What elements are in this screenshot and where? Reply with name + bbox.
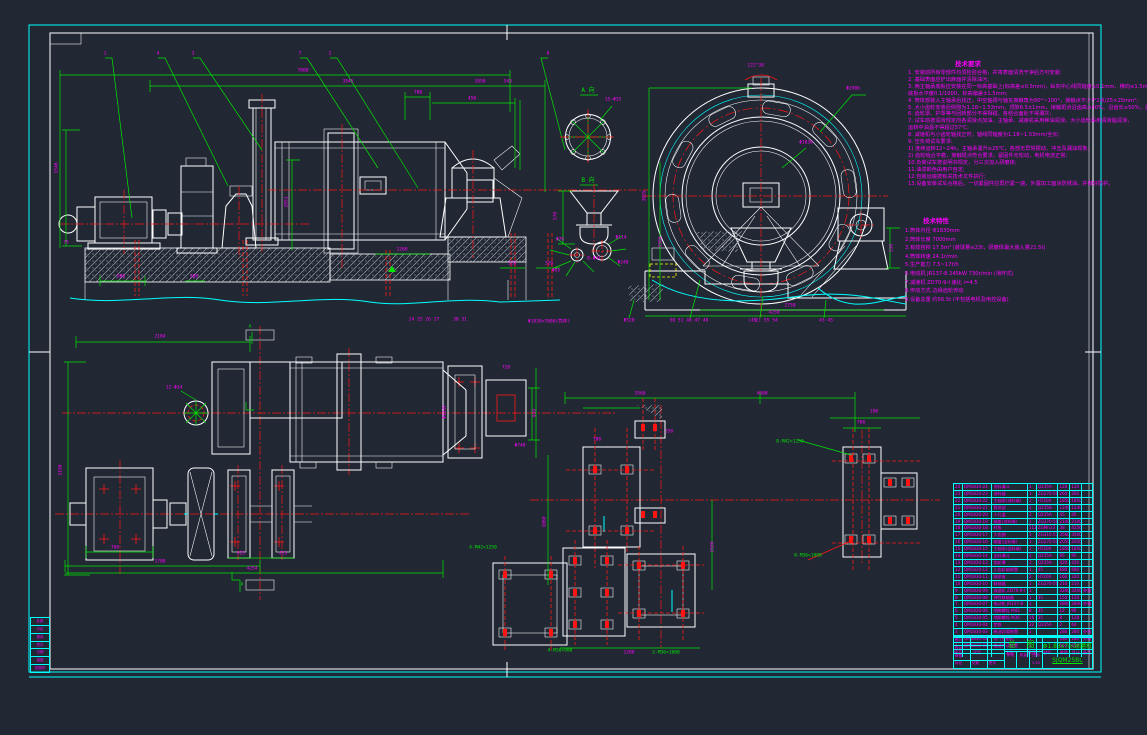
bom-row: 22QM1830-22主轴承(进料端)1HT20018501850 [954,498,1092,505]
dim-label: 930 [534,409,539,417]
bom-row: 16QM1830-16端盖(出料端)1ZG270-50020502050 [954,539,1092,546]
title-block-row: 设计 [954,638,1004,646]
dim-label: 760 [857,422,865,427]
bom-cell: 420 [1058,560,1070,566]
revision-row: 底图号 [31,665,49,672]
note-line: 1.筒体内径 Φ1830mm [905,227,1065,236]
bom-cell: 120 [1058,484,1070,490]
bom-cell: 680 [1070,567,1082,573]
bom-cell: 1 [1028,512,1037,518]
zone-label-box [50,33,81,44]
title-block-cell [988,654,1004,661]
bom-cell: 10 [954,581,963,587]
dim-label: 4-M30×900 [548,650,573,655]
bom-cell: QM1830-03 [963,629,993,635]
dim-label: 24 25 26 27 [409,319,439,324]
dim-label: 1546 [56,162,61,173]
bom-cell: 2100 [1058,519,1070,525]
bom-row: 19QM1830-19端盖(进料端)1ZG270-50021002100 [954,519,1092,526]
bom-cell: 2050 [1058,539,1070,545]
bom-cell: QM1830-21 [963,505,993,511]
bom-cell: 35 [1037,595,1059,601]
bom-cell [1082,560,1092,566]
note-line: 3. 两主轴承底板应安装在同一标高基础上(标高差≤0.5mm)，纵向中心线同轴度… [908,84,1086,91]
bom-cell: 14 [954,553,963,559]
bom-cell: HT200 [1037,574,1059,580]
dim-label: 700 [414,92,422,97]
dim-label: 3100 [60,464,65,475]
bom-cell: 18 [954,525,963,531]
bom-cell: 23 [954,491,963,497]
bom-row: 17QM1830-17大齿圈1ZG310-57035603560 [954,532,1092,539]
bom-cell: 1 [1028,588,1037,594]
bom-cell [1082,525,1092,531]
bom-cell: 1 [1028,505,1037,511]
note-line: 12.包装运输按有关技术文件执行; [908,174,1086,181]
bom-cell: 8 [954,595,963,601]
bom-cell: Q235A [1037,484,1059,490]
bom-cell [1082,519,1092,525]
title-block-signature-grid: 设计校对审核标记处数签字 [954,638,1005,668]
bom-row: 18QM1830-18衬板112ZGMn13384256 [954,525,1092,532]
title-block-row: 校对 [954,646,1004,654]
bom-cell [1082,567,1092,573]
dim-label: 1050 [474,81,485,86]
bom-cell: 4 [954,622,963,628]
bom-cell: 280 [1070,629,1082,635]
dim-label: 320 [508,263,516,268]
bom-cell [1082,595,1092,601]
bom-cell: 12400 [1058,505,1070,511]
bom-cell: QM1830-08 [963,595,993,601]
bom-cell: 12 [1058,608,1070,614]
dim-label: 1060 [544,516,549,527]
bom-cell [1082,484,1092,490]
note-line: 5.生产能力 7.5~17t/h [905,261,1065,270]
dim-label: 8-M42×1250 [776,441,804,446]
dim-label: 2750 [784,305,795,310]
title-block-row: 标记处数签字 [954,661,1004,668]
bom-cell: HT200 [1037,546,1059,552]
bom-cell: HT200 [1037,498,1059,504]
bom-cell: 95 [1058,553,1070,559]
dim-label: 15-Φ35 [605,99,622,104]
dim-label: 1260 [396,249,407,254]
dim-label: 545 [504,81,512,86]
revision-row: 更改 [31,634,49,642]
dim-label: 2051 [286,196,291,207]
dim-label: 4250 [768,312,779,317]
bom-cell: 35 [1037,608,1059,614]
dim-label: 900 [117,276,125,281]
bom-cell: 12400 [1070,505,1082,511]
title-block-cell [1005,660,1018,668]
bom-row: 14QM1830-14出料漏斗1Q235A9595 [954,553,1092,560]
note-line: 10.负荷试车按说明书规定，分三次加入研磨体; [908,160,1086,167]
view-end [628,75,906,318]
bom-cell: QM1830-20 [963,512,993,518]
bom-cell [1082,546,1092,552]
bom-cell: QM1830-06 [963,608,993,614]
main-params-lines: 1.筒体内径 Φ1830mm2.筒体长度 7000mm3.有效容积 17.5m³… [905,227,1065,304]
dim-label: 75 [63,242,69,247]
dim-label: 530 [891,244,896,252]
note-line: 9.设备总重 约56.5t (不包括电机及电控设备) [905,296,1065,305]
view-elevation [59,58,648,304]
bom-cell: 2 [1028,574,1037,580]
bom-cell: 主轴承(进料端) [992,498,1027,504]
bom-cell: 150 [1058,595,1070,601]
dim-label: 12-Φ34 [166,387,183,392]
dim-label: 450 [468,98,476,103]
bom-cell: 21 [954,505,963,511]
tech-notes-title: 技术要求 [908,58,1028,68]
bom-cell: 联轴器 [992,581,1027,587]
bom-cell [1082,491,1092,497]
bom-cell: 端盖(出料端) [992,539,1027,545]
bom-cell: ZG270-500 [1037,581,1059,587]
note-line: 11.油漆颜色由用户自定; [908,167,1086,174]
dim-label: A 向 [581,88,594,94]
dim-label: Φ1830 [799,142,813,147]
bom-row: 10QM1830-10联轴器1ZG270-500210210 [954,581,1092,588]
title-block-cell [971,638,988,645]
bom-cell: 外购 [1082,629,1092,635]
revision-strip: 处数分区更改签字日期描图底图号 [30,617,50,673]
bom-cell: 1850 [1058,546,1070,552]
title-block-cell: 校对 [954,646,971,653]
bom-cell: Q235A [1037,560,1059,566]
bom-table: 24QM1830-24进料漏斗1Q235A12012023QM1830-23进料… [953,483,1093,637]
dim-label: 1 [104,53,107,58]
bom-cell: QM1830-05 [963,615,993,621]
bom-cell: QM1830-12 [963,567,993,573]
title-block-cell: 标记 [954,661,971,668]
bom-row: 4QM1830-04垫铁32Q235A264 [954,622,1092,629]
dim-label: 3 [192,53,195,58]
bom-cell: 64 [1070,622,1082,628]
bom-cell: QM1830-24 [963,484,993,490]
note-line: 13.设备安装试车合格后，一切紧固件应再拧紧一遍，外露加工面涂防锈油，并做好防护… [908,181,1086,188]
dim-label: Φ1830 [444,405,449,419]
bom-row: 20QM1830-20人孔盖1Q235A4545 [954,512,1092,519]
dim-label: 8 [547,53,550,58]
bom-cell: 2800 [1070,601,1082,607]
bom-cell: 210 [1058,581,1070,587]
bom-cell: 1850 [1070,546,1082,552]
dim-label: 8-M36×1000 [794,555,822,560]
dim-label: 4 [157,53,160,58]
bom-cell: QM1830-17 [963,532,993,538]
bom-cell: 电动机 JR137-8 [992,601,1027,607]
note-line: 4. 筒体部装入主轴承后找正，中空轴颈与轴瓦接触角为90°~100°，接触点不少… [908,98,1086,105]
bom-cell: ZG310-570 [1037,532,1059,538]
bom-cell: 19 [954,519,963,525]
main-params: 技术特性 1.筒体内径 Φ1830mm2.筒体长度 7000mm3.有效容积 1… [905,215,1065,304]
bom-row: 9QM1830-09减速机 ZD70-9-Ⅰ132003200外购 [954,588,1092,595]
bom-cell: 1 [1028,491,1037,497]
dim-label: 50 51 48 47 46 [670,320,709,325]
tech-notes-lines: 1. 安装前所有零部件均须检验合格，并将表面清洗干净后方可安装;2. 基础表面应… [908,70,1086,187]
dim-label: Φ76 [556,239,564,244]
bom-cell: 12 [954,567,963,573]
dim-label: Φ240 [617,262,628,267]
bom-cell: 外购 [1082,588,1092,594]
bom-row: 5QM1830-05地脚螺栓 M3616358128 [954,615,1092,622]
dim-label: 3545 [342,81,353,86]
dim-label: 350 [665,431,673,436]
bom-cell: Q235A [1037,553,1059,559]
bom-rows: 24QM1830-24进料漏斗1Q235A12012023QM1830-23进料… [954,484,1092,649]
product-name: Φ1.83x7m球磨机 [1043,638,1092,654]
dim-label: A [249,326,252,331]
bom-cell [1082,615,1092,621]
dim-label: 190 [870,411,878,416]
dim-label: 320 [545,263,553,268]
bom-cell: 地脚螺栓 M42 [992,608,1027,614]
title-block-cell: 1:20 [1030,660,1042,668]
bom-cell: 160 [1058,574,1070,580]
dim-label: 2 [329,53,332,58]
title-block-cell [988,638,1004,645]
bom-cell: Q235A [1037,622,1059,628]
bom-cell: 3200 [1070,588,1082,594]
bom-cell: QM1830-07 [963,601,993,607]
view-foundation-plan [493,392,940,652]
bom-row: 3QM1830-03稀油润滑装置1280280外购 [954,629,1092,636]
bom-cell: 减速机 ZD70-9-Ⅰ [992,588,1027,594]
bom-cell: 16 [954,539,963,545]
title-block: 设计校对审核标记处数签字 总 图 阶段质量比例 1:20 Φ1.83x7m球磨机… [953,637,1093,669]
bom-cell: 17 [954,532,963,538]
title-block-scale-row-values: 1:20 [1005,660,1042,668]
dim-label: Φ740 [514,445,525,450]
title-block-cell: 审核 [954,654,971,661]
bom-cell: 1 [1028,601,1037,607]
note-line: 6.电动机 JR137-8 245kW 730r/min (滑环式) [905,270,1065,279]
note-line: 2. 基础表面应铲出麻面并清除油污; [908,77,1086,84]
bom-cell: 外购 [1082,601,1092,607]
bom-cell: 15 [954,546,963,552]
dim-label: 4-M42×1250 [469,547,497,552]
bom-row: 6QM1830-06地脚螺栓 M428351296 [954,608,1092,615]
bom-cell: 260 [1070,491,1082,497]
dim-label: 425 [237,553,245,558]
title-block-cell: 质量 [1017,652,1030,660]
note-line: 9. 空负荷试车要求: [908,139,1086,146]
dim-label: Φ114 [615,237,626,242]
bom-cell: 1850 [1070,498,1082,504]
bom-cell: 5 [954,615,963,621]
bom-cell: 112 [1028,525,1037,531]
bom-row: 15QM1830-15主轴承(出料端)1HT20018501850 [954,546,1092,553]
bom-cell: 小齿轮轴装置 [992,567,1027,573]
title-block-cell [1017,660,1030,668]
bom-cell: 出料漏斗 [992,553,1027,559]
revision-row: 描图 [31,657,49,665]
revision-row: 分区 [31,626,49,634]
bom-cell: 6 [954,608,963,614]
bom-cell [1082,581,1092,587]
bom-cell: 150 [1070,595,1082,601]
bom-cell: 95 [1070,553,1082,559]
bom-cell: QM1830-10 [963,581,993,587]
bom-cell: 2800 [1058,601,1070,607]
bom-cell: ZGMn13 [1037,525,1059,531]
bom-cell [1082,498,1092,504]
bom-row: 8QM1830-08弹性联轴器135150150 [954,595,1092,602]
bom-cell: 进料器 [992,491,1027,497]
bom-cell: 35 [1037,615,1059,621]
dim-label: 4254 [246,568,257,573]
dim-label: 3560 [634,393,645,398]
dim-label: Φ1830×7000(筒体) [528,321,570,326]
bom-cell: 3200 [1058,588,1070,594]
bom-cell: 进料漏斗 [992,484,1027,490]
cad-drawing-canvas: 1437287000354510505457004501546205175900… [0,0,1147,735]
dim-label: 30 31 [453,319,467,324]
bom-cell: 1 [1028,498,1037,504]
bom-cell: Q235B [1037,505,1059,511]
note-line: 3.有效容积 17.5m³ (装球量≤23t，研磨体最大装入量21.5t) [905,244,1065,253]
dim-label: 570 [555,212,560,220]
dim-label: 1200 [623,652,634,657]
title-block-cell [988,646,1004,653]
bom-cell: 420 [1070,560,1082,566]
dim-label: Φ520 [623,320,634,325]
bom-cell: QM1830-11 [963,574,993,580]
title-block-cell: 比例 [1030,652,1042,660]
dim-label: 425 [279,553,287,558]
bom-cell: QM1830-15 [963,546,993,552]
bom-cell: 1850 [1058,498,1070,504]
dim-label: 3935 [644,190,649,201]
dim-label: 720 [502,367,510,372]
bom-cell: 22 [954,498,963,504]
bom-cell: 1 [1028,553,1037,559]
bom-cell: 680 [1058,567,1070,573]
bom-cell [1082,505,1092,511]
bom-cell: 1 [1028,560,1037,566]
title-block-cell: 签字 [988,661,1004,668]
bom-cell: 32 [1028,622,1037,628]
bom-cell [1082,574,1092,580]
bom-row: 23QM1830-23进料器1ZG270-500260260 [954,491,1092,498]
bom-cell [1082,622,1092,628]
bom-cell: 260 [1058,491,1070,497]
bom-cell: 38 [1058,525,1070,531]
bom-cell: 4256 [1070,525,1082,531]
dim-label: 7 [299,53,302,58]
bom-cell [1082,532,1092,538]
dim-label: 1700 [154,561,165,566]
title-block-cell: 设计 [954,638,971,645]
bom-row: 24QM1830-24进料漏斗1Q235A120120 [954,484,1092,491]
bom-cell: 3560 [1058,532,1070,538]
title-block-cell: 阶段 [1005,652,1018,660]
bom-cell: 大齿圈 [992,532,1027,538]
bom-cell: 1 [1028,595,1037,601]
dim-label: (4处) 55 54 [748,320,778,325]
drawing-type-label: 总 图 [1005,638,1042,652]
bom-cell: QM1830-23 [963,491,993,497]
bom-row: 12QM1830-12小齿轮轴装置145680680 [954,567,1092,574]
title-block-cell [971,646,988,653]
title-block-middle: 总 图 阶段质量比例 1:20 [1005,638,1043,668]
main-params-title: 技术特性 [923,215,1065,225]
bom-cell [1082,608,1092,614]
bom-row: 21QM1830-21筒体部1Q235B1240012400 [954,505,1092,512]
revision-row: 日期 [31,649,49,657]
dim-label: 122°30′ [747,65,766,70]
bom-cell: QM1830-04 [963,622,993,628]
bom-cell: 1 [1028,567,1037,573]
bom-cell: 8 [1028,608,1037,614]
note-line: 7.减速机 ZD70-9-Ⅰ 速比 i=4.5 [905,279,1065,288]
bom-cell: Q235A [1037,512,1059,518]
note-line: 2.筒体长度 7000mm [905,236,1065,245]
bom-cell: 96 [1070,608,1082,614]
bom-cell: 120 [1070,484,1082,490]
bom-cell: 弹性联轴器 [992,595,1027,601]
bom-cell: 1 [1028,546,1037,552]
bom-cell: 筒体部 [992,505,1027,511]
bom-cell: 8 [1058,615,1070,621]
bom-cell: 1 [1028,539,1037,545]
bom-cell: 24 [954,484,963,490]
bom-row: 7QM1830-07电动机 JR137-8128002800外购 [954,601,1092,608]
bom-cell: 2050 [1070,539,1082,545]
bom-cell: 7 [954,601,963,607]
bom-cell: 45 [1058,512,1070,518]
bom-cell: 13 [954,560,963,566]
dim-label: 8-Φ41 [587,258,601,263]
bom-cell: 9 [954,588,963,594]
detail-views [550,95,626,276]
bom-cell: 1 [1028,532,1037,538]
note-line: 底板水平度0.1/1000，标高偏差±1.5mm; [908,91,1086,98]
revision-row: 签字 [31,642,49,650]
dim-label: 1586 [660,236,665,247]
bom-cell: QM1830-16 [963,539,993,545]
dim-label: 43 45 [819,320,833,325]
bom-cell: 3 [954,629,963,635]
bom-cell: 280 [1058,629,1070,635]
bom-cell: 20 [954,512,963,518]
dim-label: Φ2906 [846,88,860,93]
bom-row: 13QM1830-13齿轮罩1Q235A420420 [954,560,1092,567]
bom-cell: 1 [1028,484,1037,490]
bom-cell: ZG270-500 [1037,491,1059,497]
bom-cell: 1 [1028,629,1037,635]
bom-cell [1082,539,1092,545]
bom-cell [1082,553,1092,559]
bom-cell: QM1830-18 [963,525,993,531]
note-line: 8.传动方式 边缘齿轮传动 [905,287,1065,296]
bom-row: 11QM1830-11轴承座2HT200160320 [954,574,1092,581]
bom-cell: 衬板 [992,525,1027,531]
bom-cell: 11 [954,574,963,580]
bom-cell [1082,512,1092,518]
dim-label: B 向 [581,178,594,184]
bom-cell: 垫铁 [992,622,1027,628]
dim-label: 760 [111,547,119,552]
bom-cell: 45 [1070,512,1082,518]
view-plan [55,326,615,600]
bom-cell: 地脚螺栓 M36 [992,615,1027,621]
bom-cell: 齿轮罩 [992,560,1027,566]
bom-cell: 128 [1070,615,1082,621]
